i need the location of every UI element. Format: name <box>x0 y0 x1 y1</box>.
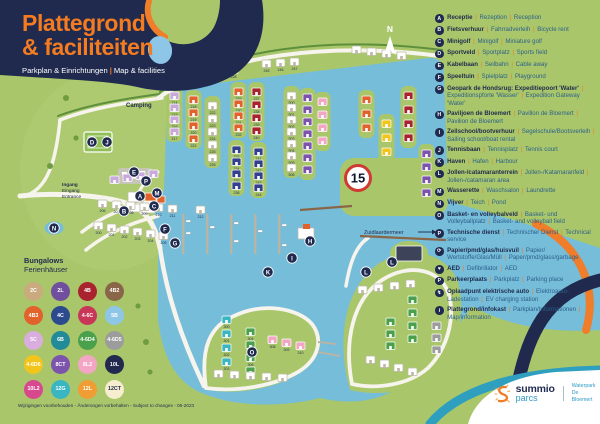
legend-badge-l: L <box>435 170 444 179</box>
legend-separator: | <box>518 211 525 218</box>
legend-item: I Zeilschool/bootverhuur | Segelschule/B… <box>435 128 596 143</box>
house-number: 221 <box>191 144 197 148</box>
house-number: 506 <box>289 173 295 177</box>
house-number: 204 <box>148 239 154 243</box>
legend-label-en: Pond <box>492 199 506 206</box>
legend-separator: | <box>489 158 496 165</box>
legend-separator: | <box>498 265 505 272</box>
legend-separator: | <box>478 61 485 68</box>
legend-label-nl: Parkeerplaats <box>447 276 487 283</box>
legend-separator: | <box>515 128 522 135</box>
legend-badge-h: H <box>435 111 444 120</box>
house-number: 217 <box>172 137 178 141</box>
legend-label-de: Expeditionspforte 'Wasser' <box>447 92 519 99</box>
svg-text:G: G <box>173 241 178 247</box>
legend-item: L Jollen-/catamaranterrein | Jollen-/Kat… <box>435 169 596 184</box>
bungalow-legend-subtitle: Ferienhäuser <box>24 266 124 275</box>
house-number: 304 <box>248 337 254 341</box>
recycle-icon: ⟳ <box>435 247 444 256</box>
legend-item: P Parkeerplaats | Parkplatz | Parking pl… <box>435 276 596 285</box>
legend-label-nl: Fietsverhuur <box>447 26 484 33</box>
legend-label-nl: Plattegrond/infokast <box>447 306 506 313</box>
entrance-label-de: Eingang <box>62 188 80 194</box>
house-number: 301 <box>224 339 230 343</box>
legend-item: ♥ AED | Defibrillator | AED <box>435 265 596 274</box>
house-number: 209 <box>142 212 148 216</box>
legend-item: D Sportveld | Sportplatz | Sports field <box>435 49 596 58</box>
house-number: 302 <box>224 353 230 357</box>
legend-separator: | <box>574 110 579 117</box>
park-name-line2: De Bloemert <box>572 390 600 404</box>
legend-separator: | <box>464 199 471 206</box>
svg-text:L: L <box>390 260 394 266</box>
svg-text:H: H <box>308 239 312 245</box>
legend-label-en: Cable away <box>516 61 548 68</box>
legend-label-nl: Jollen-/catamaranterrein <box>447 169 518 176</box>
svg-text:J: J <box>105 140 108 146</box>
legend-label-en: AED <box>505 265 518 272</box>
house-number: 247 <box>292 67 298 71</box>
legend-badge-m: M <box>435 188 444 197</box>
svg-text:Zuidlaardermeer: Zuidlaardermeer <box>364 230 404 236</box>
bungalow-type-12g: 12G <box>51 380 70 399</box>
speed-limit-value: 15 <box>351 171 365 186</box>
bungalow-type-2c: 2C <box>24 282 43 301</box>
house-number: 300 <box>224 325 230 329</box>
house-number: 232 <box>236 133 242 137</box>
legend-label-de: Pavillon de Bloemert <box>518 110 574 117</box>
bungalow-type-4c: 4C <box>51 306 70 325</box>
legend-label-nl: Sportveld <box>447 49 475 56</box>
entrance-label-en: Entrance <box>62 194 82 200</box>
legend-separator: | <box>475 73 482 80</box>
legend-item: O Basket- en volleybalveld | Basket- und… <box>435 211 596 226</box>
legend-label-nl: Geopark de Hondsrug: Expeditiepoort 'Wat… <box>447 85 579 92</box>
legend-separator: | <box>584 169 589 176</box>
map-marker-l: L <box>361 267 371 277</box>
house-number: 240 <box>254 136 260 140</box>
legend-label-en: Miniature golf <box>505 38 542 45</box>
bungalow-type-4b2: 4B2 <box>105 282 124 301</box>
legend-separator: | <box>510 49 517 56</box>
house-number: 239 <box>254 123 260 127</box>
legend-label-de: Waschsalon <box>486 187 519 194</box>
legend-badge-f: F <box>435 73 444 82</box>
legend-separator: | <box>479 296 486 303</box>
legend-label-de: Hafen <box>472 158 488 165</box>
title-panel-blob <box>0 0 263 91</box>
legend-label-nl: Basket- en volleybalveld <box>447 211 518 218</box>
legend-label-nl: Minigolf <box>447 38 470 45</box>
legend-label-en: Basket- and volleyball field <box>493 218 565 225</box>
house-number: 303 <box>224 367 230 371</box>
house-number: 203 <box>135 237 141 241</box>
map-marker-o: O <box>247 347 257 357</box>
legend-badge-j: J <box>435 146 444 155</box>
bungalow-type-4-6d6: 4-6D6 <box>24 355 43 374</box>
house-number: 238 <box>254 110 260 114</box>
disclaimer-text: Wijzigingen voorbehouden - Änderungen vo… <box>18 403 194 408</box>
legend-label-nl: Papier/pmd/glas/huisvuil <box>447 247 519 254</box>
legend-label-en: Map/information <box>447 314 491 321</box>
lakeside-building <box>396 246 422 261</box>
bungalow-type-10l2: 10L2 <box>24 380 43 399</box>
house-number: 220 <box>191 131 197 135</box>
house-number: 205 <box>161 241 167 245</box>
legend-label-nl: Technische dienst <box>447 229 500 236</box>
svg-text:A: A <box>138 194 143 200</box>
legend-item: C Minigolf | Minigolf | Miniature golf <box>435 38 596 47</box>
map-marker-l: L <box>387 257 397 267</box>
svg-text:C: C <box>152 204 157 210</box>
map-marker-i: I <box>287 253 297 263</box>
legend-item: ↯ Oplaadpunt elektrische auto | Elektroa… <box>435 288 596 303</box>
bungalow-type-12l: 12L <box>78 380 97 399</box>
legend-item: H Paviljoen de Bloemert | Pavillon de Bl… <box>435 110 596 125</box>
map-marker-c: C <box>149 201 159 211</box>
map-marker-m: M <box>152 188 162 198</box>
svg-text:O: O <box>250 350 255 356</box>
map-marker-g: G <box>170 238 180 248</box>
legend-label-en: Paper/pmd/glass/garbage <box>509 254 579 261</box>
legend-label-en: Laundrette <box>526 187 555 194</box>
house-number: 308 <box>270 345 276 349</box>
title-panel-decoration <box>0 0 263 91</box>
legend-item: A Receptie | Rezeption | Reception <box>435 14 596 23</box>
legend-label-nl: AED <box>447 265 460 272</box>
legend-badge-e: E <box>435 62 444 71</box>
legend-separator: | <box>481 146 488 153</box>
legend-label-en: Sailing school/boat rental <box>447 136 515 143</box>
house-number: 206 <box>100 209 106 213</box>
legend-item: G Geopark de Hondsrug: Expeditiepoort 'W… <box>435 85 596 108</box>
house-number: 309 <box>284 348 290 352</box>
svg-text:B: B <box>122 209 127 215</box>
legend-label-en: Parking place <box>526 276 563 283</box>
house-number: 210 <box>156 213 162 217</box>
parking-icon: P <box>435 277 444 286</box>
legend-label-de: Segelschule/Bootsverleih <box>522 128 590 135</box>
legend-badge-i: I <box>435 128 444 137</box>
house-number: 218 <box>191 105 197 109</box>
house-number: 219 <box>191 118 197 122</box>
legend-label-nl: Oplaadpunt elektrische auto <box>447 288 529 295</box>
map-marker-f: F <box>160 224 170 234</box>
house-number: 225 <box>210 150 216 154</box>
house-number: 224 <box>210 137 216 141</box>
map-marker-d: D <box>87 137 97 147</box>
ev-charger-icon: ↯ <box>435 289 444 298</box>
house-number: 202 <box>122 235 128 239</box>
legend-label-de: Spielplatz <box>482 73 508 80</box>
legend-label-de: Sportplatz <box>482 49 509 56</box>
legend-separator: | <box>511 110 518 117</box>
bungalow-type-5c: 5C <box>24 331 43 350</box>
bungalow-type-4-6d4: 4-6D4 <box>78 331 97 350</box>
legend-badge-a: A <box>435 14 444 23</box>
legend-label-nl: Zeilschool/bootverhuur <box>447 128 515 135</box>
legend-separator: | <box>518 169 525 176</box>
legend-item: i Plattegrond/infokast | Parkplan/Inform… <box>435 306 596 321</box>
legend-badge-n: N <box>435 200 444 209</box>
bungalow-type-grid: 2C2L4B4B24B34C4-6C5B5C6B4-6D44-6D54-6D68… <box>24 282 124 399</box>
legend-label-en: Playground <box>515 73 546 80</box>
legend-badge-b: B <box>435 26 444 35</box>
legend-item: ⟳ Papier/pmd/glas/huisvuil | Papier/ Wer… <box>435 247 596 262</box>
compass-label: N <box>387 24 393 34</box>
house-number: 212 <box>198 215 204 219</box>
bungalow-type-4-6c: 4-6C <box>78 306 97 325</box>
svg-text:E: E <box>132 170 136 176</box>
legend-label-de: Parkplan/Informationen <box>513 306 576 313</box>
legend-badge-k: K <box>435 158 444 167</box>
house-number: 245 <box>264 69 270 73</box>
legend-label-de: Parkplatz <box>494 276 519 283</box>
legend-label-en: Sports field <box>517 49 547 56</box>
legend-badge-g: G <box>435 85 444 94</box>
legend-label-nl: Haven <box>447 158 465 165</box>
house-number: 244 <box>256 193 262 197</box>
legend-separator: | <box>460 265 467 272</box>
legend-label-en: Harbour <box>496 158 518 165</box>
map-marker-b: B <box>119 206 129 216</box>
svg-text:F: F <box>163 227 167 233</box>
bungalow-type-10l: 10L <box>105 355 124 374</box>
legend-label-nl: Tennisbaan <box>447 146 480 153</box>
house-number: 223 <box>210 124 216 128</box>
legend-separator: | <box>509 61 516 68</box>
legend-label-de: Seilbahn <box>485 61 509 68</box>
legend-separator: | <box>506 306 513 313</box>
legend-label-nl: Speeltuin <box>447 73 474 80</box>
svg-text:D: D <box>90 140 95 146</box>
legend-separator: | <box>518 146 525 153</box>
legend-label-de: Jollen-/Katamaranfeld <box>525 169 584 176</box>
legend-separator: | <box>485 199 492 206</box>
bungalow-type-8ct: 8CT <box>51 355 70 374</box>
svg-text:N: N <box>52 226 56 232</box>
legend-separator: | <box>486 218 493 225</box>
bungalow-type-8l2: 8L2 <box>78 355 97 374</box>
legend-badge-p: P <box>435 229 444 238</box>
legend-label-en: Reception <box>514 14 541 21</box>
legend-item: P Technische dienst | Technischer Dienst… <box>435 229 596 244</box>
legend-label-en: Pavilion de Bloemert <box>447 118 503 125</box>
legend-label-nl: Vijver <box>447 199 464 206</box>
house-number: 237 <box>254 97 260 101</box>
aed-icon: ♥ <box>435 265 444 274</box>
info-icon: i <box>435 306 444 315</box>
legend-separator: | <box>590 128 595 135</box>
map-marker-j: J <box>102 137 112 147</box>
map-marker-k: K <box>263 267 273 277</box>
map-marker-a: A <box>135 191 145 201</box>
legend-separator: | <box>502 254 509 261</box>
map-marker-h: H <box>305 236 315 246</box>
svg-text:K: K <box>266 270 271 276</box>
bungalow-type-4-6d5: 4-6D5 <box>105 331 124 350</box>
legend-label-de: Technischer Dienst <box>507 229 558 236</box>
brand-logo: summio parcs Waterpark De Bloemert <box>494 383 600 404</box>
legend-item: J Tennisbaan | Tennisplatz | Tennis cour… <box>435 146 596 155</box>
legend-list: A Receptie | Rezeption | Reception B Fie… <box>435 14 596 324</box>
map-marker-p: P <box>141 176 151 186</box>
legend-item: K Haven | Hafen | Harbour <box>435 158 596 167</box>
logo-divider <box>563 386 564 401</box>
svg-text:L: L <box>364 270 368 276</box>
legend-label-en: EV charging station <box>486 296 539 303</box>
house-number: 201 <box>109 233 115 237</box>
legend-separator: | <box>507 14 514 21</box>
bungalow-type-5b: 5B <box>105 306 124 325</box>
house-number: 246 <box>278 68 284 72</box>
legend-item: B Fietsverhuur | Fahrradverleih | Bicycl… <box>435 26 596 35</box>
legend-item: M Wasserette | Waschsalon | Laundrette <box>435 187 596 196</box>
legend-label-en: Tennis court <box>525 146 558 153</box>
legend-badge-o: O <box>435 211 444 220</box>
legend-separator: | <box>508 73 515 80</box>
legend-label-de: Teich <box>471 199 485 206</box>
bungalow-type-4b: 4B <box>78 282 97 301</box>
bungalow-type-12ct: 12CT <box>105 380 124 399</box>
bungalow-type-4b3: 4B3 <box>24 306 43 325</box>
legend-separator: | <box>576 306 581 313</box>
legend-separator: | <box>500 229 507 236</box>
legend-separator: | <box>579 85 584 92</box>
house-number: 226 <box>210 163 216 167</box>
entrance-label-nl: Ingang <box>62 182 78 188</box>
legend-separator: | <box>519 92 526 99</box>
legend-label-nl: Kabelbaan <box>447 61 478 68</box>
legend-separator: | <box>484 26 491 33</box>
legend-label-de: Fahrradverleih <box>491 26 530 33</box>
legend-label-nl: Paviljoen de Bloemert <box>447 110 511 117</box>
park-name-line1: Waterpark <box>572 383 600 390</box>
camping-label: Camping <box>126 103 152 109</box>
house-number: 211 <box>170 214 176 218</box>
house-number: 310 <box>298 351 304 355</box>
bungalow-legend: Bungalows Ferienhäuser 2C2L4B4B24B34C4-6… <box>24 256 124 399</box>
house-number: 222 <box>210 111 216 115</box>
legend-label-en: Jollen-/catamaran area <box>447 177 509 184</box>
speed-limit-sign: 15 <box>346 166 371 191</box>
house-number: 200 <box>96 231 102 235</box>
house-number: 306 <box>248 363 254 367</box>
legend-separator: | <box>519 247 526 254</box>
legend-label-de: Minigolf <box>477 38 498 45</box>
brand-name-2: parcs <box>516 394 555 403</box>
legend-label-de: Rezeption <box>479 14 506 21</box>
map-marker-n: N <box>49 223 59 233</box>
legend-item: F Speeltuin | Spielplatz | Playground <box>435 73 596 82</box>
house-number: 236 <box>234 191 240 195</box>
legend-item: N Vijver | Teich | Pond <box>435 199 596 208</box>
legend-badge-c: C <box>435 38 444 47</box>
legend-badge-d: D <box>435 50 444 59</box>
svg-text:M: M <box>155 191 160 197</box>
legend-label-de: Tennisplatz <box>488 146 519 153</box>
bungalow-type-2l: 2L <box>51 282 70 301</box>
legend-label-de: Defibrillator <box>467 265 498 272</box>
svg-text:P: P <box>144 179 148 185</box>
legend-separator: | <box>529 288 536 295</box>
legend-item: E Kabelbaan | Seilbahn | Cable away <box>435 61 596 70</box>
bungalow-type-6b: 6B <box>51 331 70 350</box>
summio-s-icon <box>494 384 511 404</box>
legend-label-nl: Receptie <box>447 14 472 21</box>
legend-separator: | <box>487 276 494 283</box>
legend-label-nl: Wasserette <box>447 187 479 194</box>
map-marker-e: E <box>129 167 139 177</box>
legend-label-en: Bicycle rent <box>537 26 569 33</box>
